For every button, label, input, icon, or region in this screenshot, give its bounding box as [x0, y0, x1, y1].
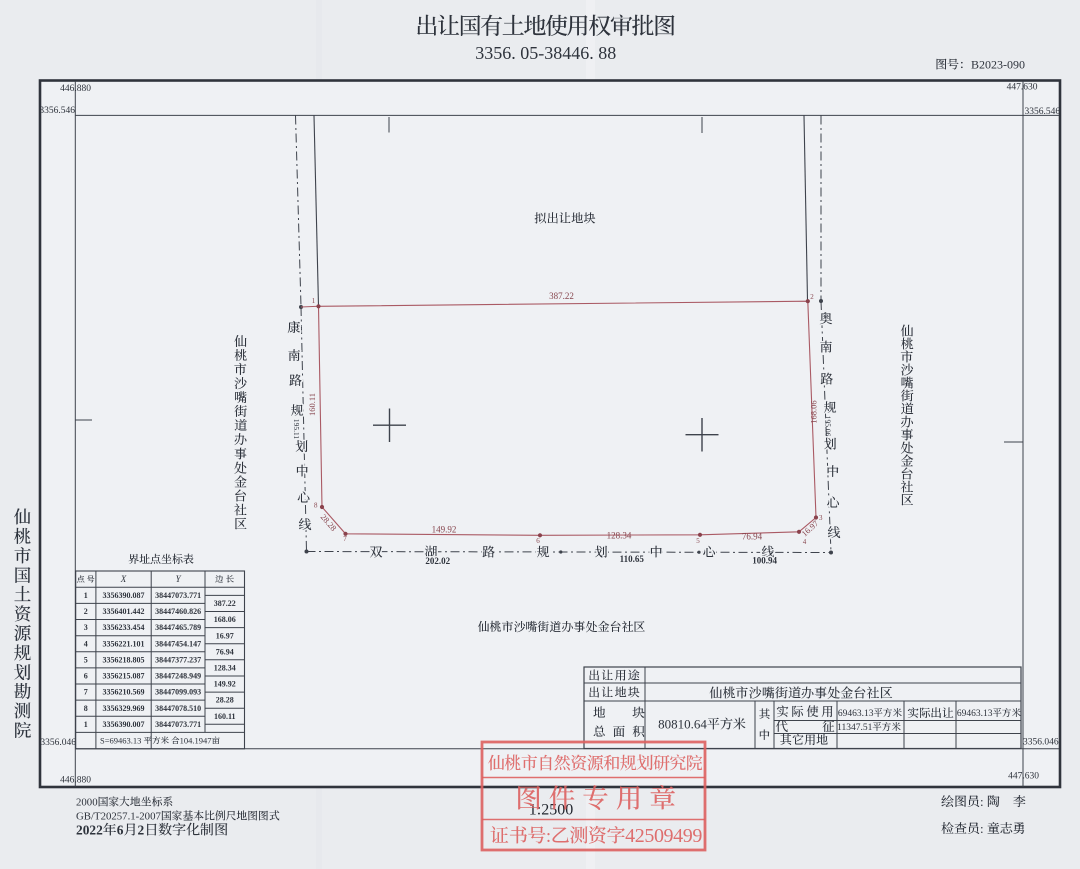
svg-text:块: 块 — [632, 703, 645, 721]
svg-text:3356233.454: 3356233.454 — [103, 623, 145, 632]
svg-text:仙桃市自然资源和规划研究院: 仙桃市自然资源和规划研究院 — [488, 749, 703, 774]
svg-text:3356.546: 3356.546 — [39, 106, 75, 116]
svg-text:3356. 05-38446. 88: 3356. 05-38446. 88 — [475, 43, 616, 63]
svg-text:面: 面 — [613, 722, 626, 740]
svg-text:168.06: 168.06 — [214, 615, 236, 624]
svg-text:区: 区 — [234, 514, 247, 533]
svg-text:双: 双 — [369, 542, 382, 561]
svg-text:中: 中 — [649, 542, 662, 561]
svg-text:202.02: 202.02 — [425, 556, 450, 566]
svg-text:规: 规 — [823, 397, 836, 416]
svg-text:地: 地 — [593, 703, 606, 721]
svg-text:38447465.789: 38447465.789 — [155, 623, 201, 632]
svg-text:38447460.826: 38447460.826 — [155, 607, 201, 616]
svg-text:128.34: 128.34 — [607, 531, 632, 541]
svg-text:中: 中 — [295, 460, 308, 479]
svg-text:195.11: 195.11 — [292, 419, 301, 440]
svg-text:110.65: 110.65 — [620, 554, 645, 564]
svg-text:4: 4 — [84, 639, 88, 648]
svg-text:1: 1 — [312, 297, 316, 305]
svg-text:1: 1 — [84, 591, 88, 600]
svg-text:际: 际 — [791, 702, 804, 720]
svg-text:446.880: 446.880 — [60, 84, 91, 94]
svg-text:446.880: 446.880 — [60, 776, 91, 786]
svg-text:3356210.569: 3356210.569 — [103, 688, 145, 697]
svg-text:3356390.007: 3356390.007 — [103, 720, 145, 729]
svg-text:38447078.510: 38447078.510 — [155, 704, 201, 713]
svg-text:7: 7 — [343, 535, 347, 543]
svg-text:拟出让地块: 拟出让地块 — [534, 208, 596, 226]
svg-text:心: 心 — [702, 542, 715, 561]
svg-text:8: 8 — [84, 704, 88, 713]
svg-text:38447377.237: 38447377.237 — [155, 656, 201, 665]
svg-text:38447454.147: 38447454.147 — [155, 639, 201, 648]
svg-text:实际出让: 实际出让 — [908, 705, 954, 721]
svg-text:6: 6 — [536, 537, 540, 545]
svg-text:1: 1 — [84, 720, 88, 729]
svg-text:149.92: 149.92 — [432, 525, 457, 535]
svg-text:中: 中 — [759, 727, 771, 743]
svg-text:100.94: 100.94 — [752, 556, 777, 566]
svg-text:38447073.771: 38447073.771 — [155, 720, 201, 729]
svg-text:康: 康 — [287, 317, 300, 336]
svg-text:128.34: 128.34 — [214, 664, 236, 673]
svg-text:路: 路 — [482, 542, 495, 561]
svg-text:心: 心 — [297, 487, 310, 506]
svg-text:3356218.805: 3356218.805 — [103, 656, 145, 665]
svg-text:S=69463.13 平方米 合104.1947亩: S=69463.13 平方米 合104.1947亩 — [100, 735, 221, 747]
svg-text:出让用途: 出让用途 — [588, 666, 641, 683]
svg-text:3: 3 — [84, 623, 88, 632]
svg-text:规: 规 — [290, 400, 303, 419]
svg-text:195.06: 195.06 — [823, 416, 832, 437]
svg-text:3356.046: 3356.046 — [40, 738, 76, 748]
svg-text:划: 划 — [595, 542, 608, 561]
svg-text:4: 4 — [803, 538, 807, 546]
svg-text:积: 积 — [631, 722, 645, 740]
svg-text:南: 南 — [819, 337, 832, 356]
svg-text:出让国有土地使用权审批图: 出让国有土地使用权审批图 — [415, 8, 675, 41]
svg-text:447.630: 447.630 — [1008, 772, 1039, 782]
svg-text:绘图员: 陶 李: 绘图员: 陶 李 — [941, 791, 1026, 810]
svg-text:总: 总 — [593, 722, 606, 740]
svg-text:使: 使 — [806, 702, 819, 720]
svg-text:其: 其 — [759, 706, 771, 722]
svg-text:76.94: 76.94 — [216, 647, 234, 656]
svg-text:仙桃市沙嘴街道办事处金台社区: 仙桃市沙嘴街道办事处金台社区 — [477, 618, 645, 635]
svg-text:80810.64平方米: 80810.64平方米 — [658, 713, 746, 732]
svg-text:2: 2 — [84, 607, 88, 616]
svg-text:线: 线 — [298, 514, 311, 533]
svg-text:仙桃市沙嘴街道办事处金台社区: 仙桃市沙嘴街道办事处金台社区 — [709, 683, 892, 702]
svg-text:16.97: 16.97 — [216, 631, 234, 640]
svg-text:76.94: 76.94 — [742, 532, 763, 542]
svg-text:6: 6 — [84, 672, 88, 681]
svg-text:南: 南 — [287, 345, 300, 364]
svg-text:界址点坐标表: 界址点坐标表 — [128, 551, 194, 567]
svg-text:X: X — [120, 574, 127, 584]
svg-text:线: 线 — [827, 522, 840, 541]
svg-text:边 长: 边 长 — [214, 573, 235, 585]
svg-text:38447099.093: 38447099.093 — [155, 688, 201, 697]
svg-text:387.22: 387.22 — [214, 599, 236, 608]
svg-text:图号：B2023-090: 图号：B2023-090 — [935, 56, 1025, 73]
svg-text:其它用地: 其它用地 — [780, 731, 828, 748]
svg-text:图件专用章: 图件专用章 — [515, 776, 683, 815]
svg-text:5: 5 — [84, 656, 88, 665]
svg-text:160.11: 160.11 — [307, 393, 317, 416]
svg-text:8: 8 — [314, 501, 318, 509]
svg-text:出让地块: 出让地块 — [588, 684, 641, 701]
svg-text:5: 5 — [696, 537, 700, 545]
svg-text:路: 路 — [820, 369, 833, 388]
svg-text:7: 7 — [84, 688, 88, 697]
svg-text:中: 中 — [826, 461, 839, 480]
svg-text:3356221.101: 3356221.101 — [103, 639, 145, 648]
svg-text:划: 划 — [824, 434, 837, 453]
svg-text:3356.046: 3356.046 — [1023, 738, 1059, 748]
svg-text:3356401.442: 3356401.442 — [103, 607, 145, 616]
svg-text:3356.546: 3356.546 — [1025, 107, 1061, 117]
svg-text:3: 3 — [819, 514, 823, 522]
svg-text:447.630: 447.630 — [1007, 83, 1038, 93]
svg-text:心: 心 — [826, 492, 839, 511]
svg-text:奥: 奥 — [819, 308, 832, 327]
svg-text:3356390.087: 3356390.087 — [103, 591, 145, 600]
svg-text:149.92: 149.92 — [214, 680, 236, 689]
svg-text:路: 路 — [289, 370, 302, 389]
svg-text:38447073.771: 38447073.771 — [155, 591, 201, 600]
svg-text:38447248.949: 38447248.949 — [155, 672, 201, 681]
svg-text:160.11: 160.11 — [214, 712, 236, 721]
svg-text:168.06: 168.06 — [808, 400, 818, 423]
svg-text:3356329.969: 3356329.969 — [103, 704, 145, 713]
svg-text:2: 2 — [810, 293, 814, 301]
svg-text:3356215.087: 3356215.087 — [103, 672, 145, 681]
svg-text:2000国家大地坐标系: 2000国家大地坐标系 — [76, 794, 173, 809]
svg-text:院: 院 — [14, 718, 32, 743]
svg-text:区: 区 — [900, 489, 913, 508]
svg-text:检查员: 童志勇: 检查员: 童志勇 — [940, 818, 1026, 837]
svg-text:2022年6月2日数字化制图: 2022年6月2日数字化制图 — [76, 820, 228, 840]
svg-text:28.28: 28.28 — [216, 696, 234, 705]
svg-text:证书号:乙测资字42509499: 证书号:乙测资字42509499 — [490, 821, 702, 848]
svg-text:387.22: 387.22 — [549, 291, 574, 301]
